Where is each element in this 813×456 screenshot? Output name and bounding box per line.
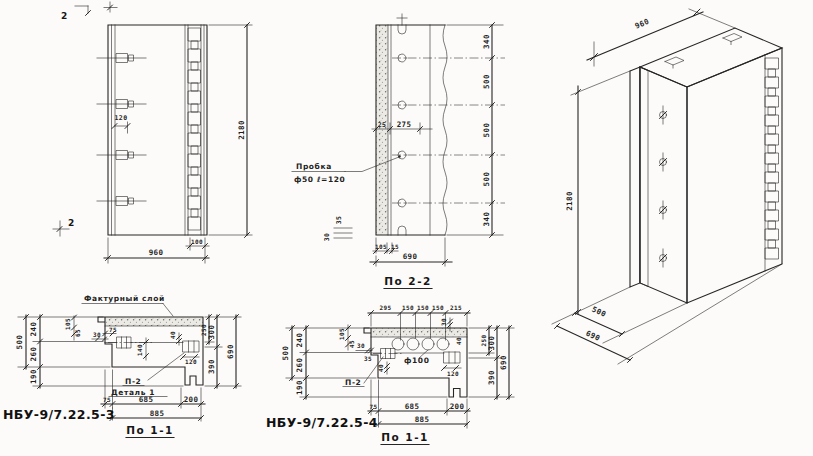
- section-2-2-view: 340 500 500 500 340 25 275 Пробка ф50 ℓ=…: [292, 14, 505, 289]
- d4-caption: По 1-1: [381, 431, 429, 443]
- dim-500-1: 500: [482, 74, 491, 89]
- d4-keyway-plug-box: [444, 352, 460, 363]
- anchor-axis-lines: [97, 58, 146, 201]
- d4-dim-30: 30: [357, 342, 365, 349]
- section-marker-top: 2: [61, 11, 67, 21]
- iso-dim-height: 2180: [565, 191, 574, 211]
- d3-dim-500: 500: [15, 335, 24, 350]
- plug-holes: [398, 54, 406, 207]
- plug-label-spec: ф50 ℓ=120: [294, 175, 345, 184]
- dim-120: 120: [115, 114, 128, 122]
- plug-label-title: Пробка: [296, 162, 332, 171]
- panel-outline: [108, 25, 207, 235]
- d3-dim-690: 690: [226, 344, 235, 359]
- d4-dim-215: 215: [450, 304, 462, 311]
- d4-dim-r40: 40: [455, 337, 462, 345]
- dim-ext-right: [447, 25, 503, 235]
- d4-dim-500: 500: [281, 346, 290, 361]
- d4-dim-35: 35: [364, 355, 372, 362]
- d3-node-label: П-2: [125, 377, 141, 386]
- iso-top-face: [640, 28, 782, 87]
- d3-dim-140: 140: [136, 344, 143, 356]
- d4-dim-120: 120: [447, 370, 459, 377]
- d3-dim-65: 65: [74, 329, 81, 337]
- d3-dim-200: 200: [184, 395, 199, 404]
- iso-keyway-links: [769, 69, 776, 248]
- d3-dim-30: 30: [93, 331, 101, 338]
- blueprint-sheet: 120 2180 960 100 2 2: [0, 0, 813, 456]
- iso-facing-layer-strip: [640, 67, 648, 287]
- d3-dim-240: 240: [29, 322, 38, 337]
- d4-dim-200: 200: [450, 402, 465, 411]
- dim-width: 960: [149, 248, 164, 257]
- d4-dim-150b: 150: [417, 304, 429, 311]
- iso-dim-500: 500: [590, 305, 607, 319]
- d3-dim-190: 190: [29, 369, 38, 384]
- dim-100: 100: [191, 238, 203, 245]
- iso-dim-width: 960: [634, 17, 651, 31]
- iso-front-face: [640, 67, 687, 303]
- d3-dim-685: 685: [139, 395, 154, 404]
- dim-15: 15: [391, 243, 399, 250]
- dim-275: 275: [397, 120, 412, 129]
- d4-dim-105: 105: [338, 328, 345, 340]
- dim-35: 35: [335, 216, 343, 225]
- d4-dim-240: 240: [295, 333, 304, 348]
- d4-dim-150c: 150: [432, 304, 444, 311]
- d4-dim-250: 250: [480, 334, 487, 346]
- d4-dim-b75: 75: [369, 403, 377, 410]
- d3-dim-b75: 75: [103, 396, 111, 403]
- d4-facing-layer-hatch: [371, 328, 467, 337]
- d4-node-label: П-2: [345, 378, 361, 387]
- section-inner-lines: [388, 25, 430, 235]
- d4-dim-190: 190: [295, 380, 304, 395]
- section-2-2-caption: По 2-2: [384, 275, 432, 287]
- d4-dim-295: 295: [379, 304, 391, 311]
- iso-left-edge-face: [630, 67, 640, 287]
- d4-dim-260: 260: [295, 358, 304, 373]
- dim-30: 30: [323, 233, 331, 242]
- d4-dim-40: 40: [377, 364, 384, 372]
- d4-dim-885: 885: [415, 415, 430, 424]
- detail-4-plan-section: ф100 П-2 295 150 150 150 215 500 240 260…: [266, 304, 514, 445]
- d4-dim-690: 690: [499, 355, 508, 370]
- d3-facing-layer-label: Фактурный слой: [84, 294, 165, 303]
- dim-340-top: 340: [482, 34, 491, 49]
- facing-layer-hatch: [376, 25, 388, 235]
- break-wavy-line: [443, 25, 447, 235]
- d3-dim-390: 390: [207, 359, 216, 374]
- front-elevation-view: 120 2180 960 100 2 2: [53, 2, 252, 263]
- iso-dim-depth: 690: [584, 329, 601, 343]
- keyway-channel-links: [192, 41, 199, 217]
- dim-25: 25: [378, 121, 387, 129]
- d4-dim-390: 390: [487, 370, 496, 385]
- dim-500-3: 500: [482, 172, 491, 187]
- d3-keyway-plug-box: [183, 341, 199, 352]
- d4-dim-r30: 30: [440, 318, 447, 326]
- d4-dim-300: 300: [487, 336, 496, 351]
- d3-dim-250: 250: [200, 324, 207, 336]
- dim-width-690: 690: [403, 252, 418, 261]
- d3-title: НБУ-9/7.22.5-3: [3, 407, 115, 422]
- d3-facing-layer-leader: [82, 304, 173, 317]
- d3-left-ext: [18, 317, 183, 386]
- detail-3-plan-section: Фактурный слой П-2 Деталь 1 500 240 260 …: [3, 294, 241, 438]
- drawing-canvas: 120 2180 960 100 2 2: [0, 0, 813, 456]
- dim-340-bottom: 340: [482, 212, 491, 227]
- dim-ext-2180: [209, 25, 252, 235]
- iso-top-notches: [665, 34, 742, 69]
- plug-leader-dot: [398, 155, 400, 157]
- d4-hole-label: ф100: [404, 356, 430, 365]
- d3-dim-300: 300: [207, 325, 216, 340]
- iso-right-face: [687, 48, 782, 303]
- dim-105: 105: [375, 243, 387, 250]
- section-marker-bottom: 2: [68, 218, 74, 228]
- panel-face-lines: [112, 25, 205, 235]
- d3-dim-105: 105: [64, 318, 71, 330]
- dim-height: 2180: [237, 120, 246, 140]
- d3-inner-lines: [105, 326, 203, 343]
- dim-500-2: 500: [482, 123, 491, 138]
- isometric-view: 2180 960 500 690: [552, 9, 782, 364]
- d3-dim-120: 120: [185, 358, 197, 365]
- section-cut-arrow-top: [86, 5, 113, 16]
- edge-offset-strokes: [334, 228, 352, 238]
- section-cut-mark-bottom: [53, 221, 69, 236]
- keyway-channel-chain: [189, 28, 201, 230]
- d3-dim-75: 75: [109, 326, 117, 333]
- d3-caption: По 1-1: [126, 424, 174, 436]
- d4-dim-150a: 150: [402, 304, 414, 311]
- d3-dim-885: 885: [150, 409, 165, 418]
- d3-facing-layer-hatch: [105, 317, 203, 326]
- d3-dim-40: 40: [169, 331, 176, 339]
- iso-anchor-marks: [660, 106, 667, 267]
- d4-title: НБУ-9/7.22.5-4: [266, 415, 378, 430]
- d4-dim-685: 685: [405, 402, 420, 411]
- anchor-loops: [117, 54, 134, 206]
- d4-dim-45: 45: [348, 340, 355, 348]
- d3-dim-260: 260: [29, 347, 38, 362]
